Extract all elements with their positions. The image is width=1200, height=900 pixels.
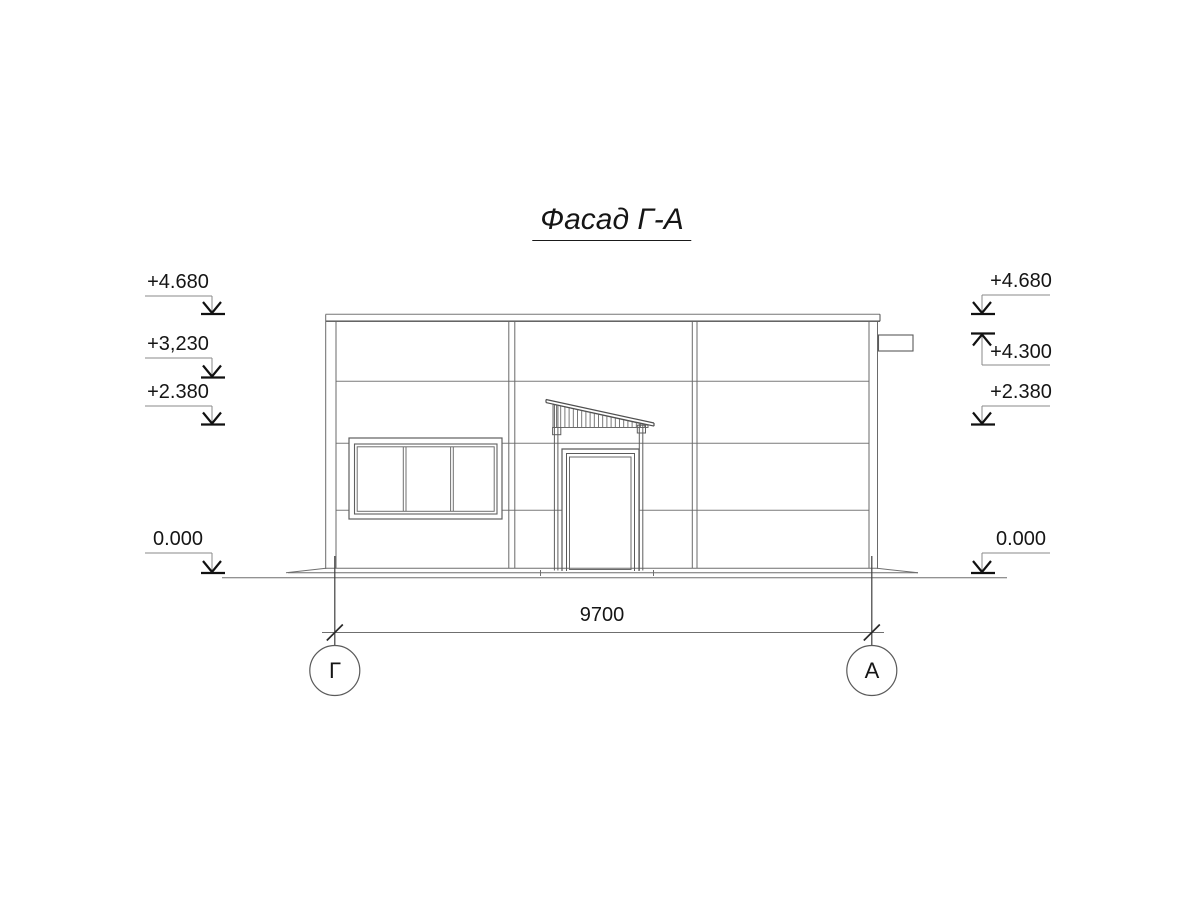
level-label-right-2380: +2.380 — [986, 381, 1056, 403]
level-label-right-4300: +4.300 — [986, 341, 1056, 363]
canopy-roof-band — [546, 400, 654, 427]
level-label-left-0000: 0.000 — [143, 528, 213, 550]
facade-linework — [0, 0, 1200, 900]
drawing-sheet: Фасад Г-А +4.680 +3,230 +2.380 0.000 +4.… — [0, 0, 1200, 900]
level-mark-right-4680 — [971, 295, 1050, 314]
dimension-line — [322, 625, 884, 641]
level-mark-right-2380 — [971, 406, 1050, 425]
window — [349, 438, 502, 519]
parapet-band — [326, 314, 881, 321]
column-mid-1 — [509, 321, 515, 568]
entrance-door — [562, 449, 639, 571]
level-mark-left-0000 — [145, 553, 225, 573]
level-mark-left-4680 — [145, 296, 225, 314]
level-mark-right-0000 — [971, 553, 1050, 573]
dimension-label: 9700 — [557, 604, 647, 626]
axis-label-a: А — [847, 659, 897, 683]
level-label-right-4680: +4.680 — [986, 270, 1056, 292]
level-label-left-2380: +2.380 — [143, 381, 213, 403]
column-left — [326, 315, 336, 570]
axis-label-g: Г — [310, 659, 360, 683]
level-label-left-4680: +4.680 — [143, 271, 213, 293]
axis-bubbles — [310, 646, 897, 696]
drawing-title: Фасад Г-А — [532, 203, 691, 241]
level-mark-left-3230 — [145, 358, 225, 378]
level-mark-left-2380 — [145, 406, 225, 425]
column-right — [869, 321, 878, 569]
level-label-right-0000: 0.000 — [986, 528, 1056, 550]
column-mid-2 — [692, 321, 697, 568]
scupper-outlet — [879, 335, 914, 351]
level-label-left-3230: +3,230 — [143, 333, 213, 355]
